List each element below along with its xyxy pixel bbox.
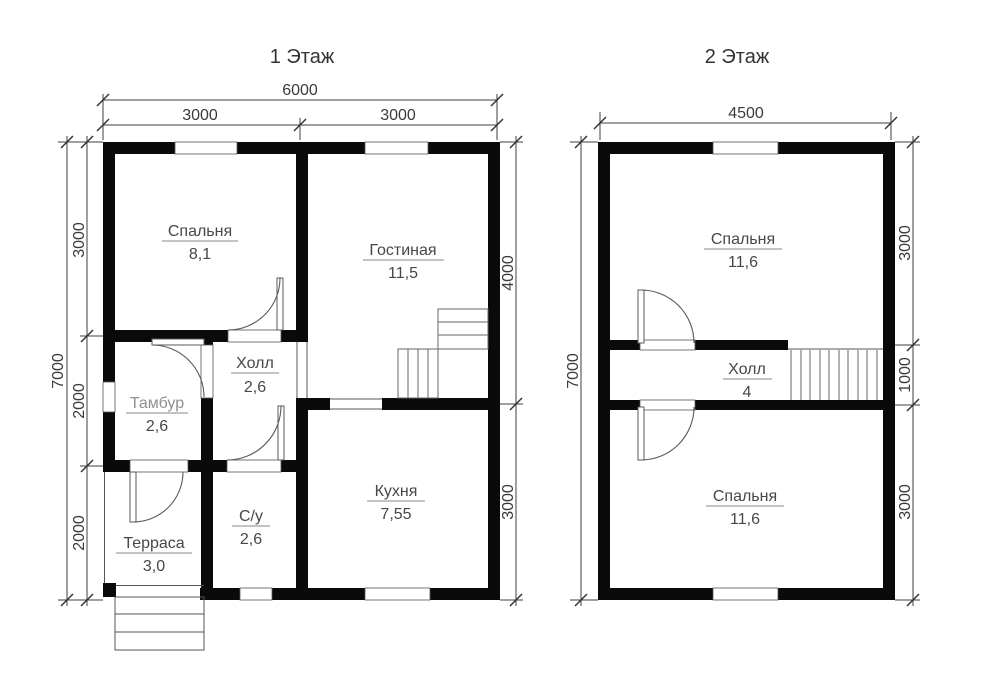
- dimension-label: 7000: [565, 353, 582, 389]
- entry-steps: [115, 597, 204, 650]
- dimension-label: 3000: [897, 484, 914, 520]
- stair-run: [438, 309, 488, 349]
- dimension-label: 4000: [500, 255, 517, 291]
- room-area-vestibule: 2,6: [146, 418, 168, 435]
- doorway: [227, 460, 281, 472]
- wall-segment: [382, 398, 488, 410]
- room-label-bedroom1: Спальня: [168, 223, 232, 240]
- wall-segment: [778, 588, 895, 600]
- dimension-label: 4500: [728, 105, 764, 122]
- room-label-terrace: Терраса: [123, 535, 184, 552]
- doorway: [640, 340, 695, 350]
- wall-segment: [598, 340, 640, 350]
- room-label-hall1: Холл: [236, 355, 274, 372]
- room-area-bedroom-top: 11,6: [728, 254, 758, 271]
- dimension-label: 3000: [897, 225, 914, 261]
- wall-segment: [598, 588, 713, 600]
- door-leaf: [638, 407, 644, 460]
- window: [103, 382, 115, 412]
- door-leaf: [638, 290, 644, 343]
- floor1-title: 1 Этаж: [270, 46, 335, 68]
- room-label-bedroom-top: Спальня: [711, 231, 775, 248]
- doorway: [130, 460, 188, 472]
- wall-segment: [695, 340, 788, 350]
- floorplan-canvas: 1 Этаж 2 Этаж: [0, 0, 1000, 700]
- window: [365, 588, 430, 600]
- wall-segment: [883, 142, 895, 600]
- window: [365, 142, 428, 154]
- room-label-bedroom-bottom: Спальня: [713, 488, 777, 505]
- floor1-stairs: [398, 309, 488, 398]
- dimension-label: 6000: [282, 82, 318, 99]
- door-arc: [152, 345, 204, 397]
- dimension-label: 1000: [897, 357, 914, 393]
- wall-segment: [296, 398, 308, 588]
- window: [240, 588, 272, 600]
- wall-segment: [296, 142, 308, 342]
- window: [713, 142, 778, 154]
- floor1-walls: [103, 142, 500, 600]
- wall-segment: [598, 142, 610, 600]
- wall-segment: [778, 142, 895, 154]
- door-arc: [227, 406, 281, 460]
- wall-segment: [488, 142, 500, 600]
- room-area-living: 11,5: [388, 265, 418, 282]
- wall-segment: [695, 400, 895, 410]
- room-area-hall1: 2,6: [244, 379, 266, 396]
- floor2-stairs: [791, 350, 877, 400]
- doorway: [228, 330, 281, 342]
- wall-segment: [200, 588, 240, 600]
- wall-segment: [598, 142, 713, 154]
- dimension-label: 7000: [50, 353, 67, 389]
- room-label-kitchen: Кухня: [375, 483, 418, 500]
- dimension-label: 3000: [380, 107, 416, 124]
- wall-segment: [103, 460, 130, 472]
- wall-segment: [281, 460, 308, 472]
- room-area-hall2: 4: [743, 384, 752, 401]
- door-arc: [133, 472, 183, 522]
- terrace-post: [103, 583, 116, 597]
- door-arc: [641, 290, 694, 343]
- room-area-wc: 2,6: [240, 531, 262, 548]
- wall-segment: [296, 398, 330, 410]
- door-arc: [641, 407, 694, 460]
- room-label-hall2: Холл: [728, 361, 766, 378]
- doorway: [201, 345, 213, 398]
- room-label-vestibule: Тамбур: [130, 395, 184, 412]
- floor2-room-labels: Спальня 11,6 Холл 4 Спальня 11,6: [704, 231, 784, 528]
- door-leaf: [130, 472, 136, 522]
- window: [713, 588, 778, 600]
- room-area-bedroom-bottom: 11,6: [730, 511, 760, 528]
- dimension-label: 2000: [71, 383, 88, 419]
- wall-segment: [201, 398, 213, 588]
- room-area-terrace: 3,0: [143, 558, 165, 575]
- dimension-label: 3000: [500, 484, 517, 520]
- door-arc: [228, 278, 280, 330]
- room-area-bedroom1: 8,1: [189, 246, 211, 263]
- wall-segment: [103, 142, 115, 382]
- window: [175, 142, 237, 154]
- room-label-living: Гостиная: [369, 242, 436, 259]
- room-label-wc: С/у: [239, 508, 263, 525]
- doorway: [640, 400, 695, 410]
- wall-segment: [598, 400, 640, 410]
- floor1-dimensions: 6000 3000 3000 7000 3000 2000 2000 4000 …: [50, 82, 523, 606]
- dimension-label: 2000: [71, 515, 88, 551]
- floor2-title: 2 Этаж: [705, 46, 770, 68]
- dimension-label: 3000: [71, 222, 88, 258]
- room-area-kitchen: 7,55: [380, 506, 411, 523]
- floor2-doors: [638, 290, 694, 460]
- dimension-label: 3000: [182, 107, 218, 124]
- wall-segment: [281, 330, 308, 342]
- door-leaf: [152, 339, 204, 345]
- wall-segment: [272, 588, 365, 600]
